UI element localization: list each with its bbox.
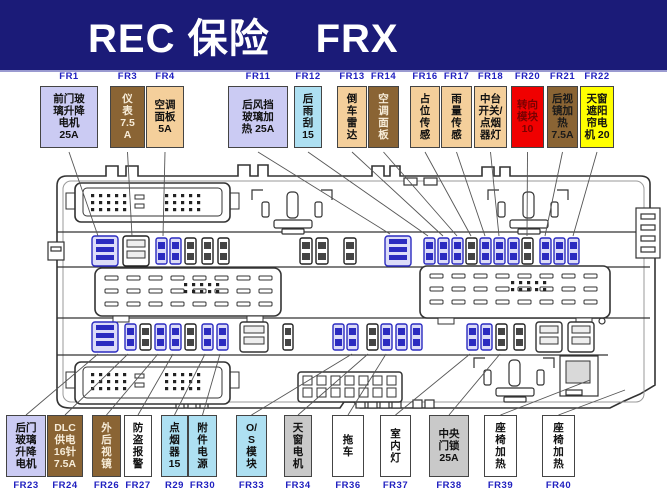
fuse-box-FR21: 后视镜加热7.5A: [547, 86, 578, 148]
fuse-box-FR36: 拖车: [332, 415, 364, 477]
fuse-label-FR33: FR33: [230, 480, 273, 491]
fuse-box-FR33: O/S模块: [236, 415, 267, 477]
fuse-box-FR11: 后风挡玻璃加热 25A: [228, 86, 288, 148]
fuse-label-FR27: FR27: [118, 480, 158, 491]
edge-connector: [636, 208, 660, 258]
fuse-box-FR23: 后门玻璃升降电机: [6, 415, 46, 477]
fuse-box-FR12: 后雨刮15: [294, 86, 322, 148]
fuse-box-FR26: 外后视镜: [92, 415, 121, 477]
fuse-box-FR37: 室内灯: [380, 415, 411, 477]
fuse-box-FR39: 座椅加热: [484, 415, 517, 477]
fuse-label-FR12: FR12: [288, 71, 328, 82]
fuse-label-FR40: FR40: [536, 480, 581, 491]
fuse-box-diagram: [0, 150, 667, 420]
fuse-box-FR16: 占位传感: [410, 86, 440, 148]
fuse-box-FR18: 中台开关/点烟器灯: [474, 86, 507, 148]
fuse-box-FR4: 空调面板5A: [146, 86, 184, 148]
fuse-box-FR38: 中央门锁25A: [429, 415, 469, 477]
fuse-label-FR38: FR38: [423, 480, 475, 491]
fuse-label-FR1: FR1: [34, 71, 104, 82]
fuse-label-FR39: FR39: [478, 480, 523, 491]
fuse-label-FR37: FR37: [374, 480, 417, 491]
module-box: [560, 356, 598, 396]
page-title-right: FRX: [316, 17, 399, 61]
fuse-box-FR40: 座椅加热: [542, 415, 575, 477]
fuse-box-FR3: 仪表7.5A: [110, 86, 145, 148]
fuse-label-FR22: FR22: [574, 71, 620, 82]
page-title: REC 保险FRX: [0, 6, 399, 64]
fuse-box-R29: 点烟器15: [161, 415, 188, 477]
title-banner: REC 保险FRX: [0, 0, 667, 72]
fuse-box-FR1: 前门玻璃升降电机25A: [40, 86, 98, 148]
fuse-label-FR24: FR24: [41, 480, 89, 491]
fuse-label-FR36: FR36: [326, 480, 370, 491]
fuse-label-FR30: FR30: [182, 480, 223, 491]
fuse-box-FR22: 天窗遮阳帘电机 20: [580, 86, 614, 148]
fuse-label-FR34: FR34: [278, 480, 318, 491]
fuse-box-FR30: 附件电源: [188, 415, 217, 477]
slide: { "header": { "title_left": "REC 保险", "t…: [0, 0, 667, 500]
fuse-box-FR14: 空调面板: [368, 86, 399, 148]
fuse-box-FR27: 防盗报警: [124, 415, 152, 477]
fuse-label-FR14: FR14: [362, 71, 405, 82]
fuse-box-FR17: 雨量传感: [441, 86, 472, 148]
fuse-box-FR24: DLC供电16针7.5A: [47, 415, 83, 477]
fuse-box-FR13: 倒车雷达: [337, 86, 367, 148]
fuse-box-FR20: 转向模块10: [511, 86, 544, 148]
fuse-label-FR4: FR4: [140, 71, 190, 82]
fuse-label-FR11: FR11: [222, 71, 294, 82]
page-title-left: REC 保险: [88, 17, 270, 61]
fuse-box-FR34: 天窗电机: [284, 415, 312, 477]
